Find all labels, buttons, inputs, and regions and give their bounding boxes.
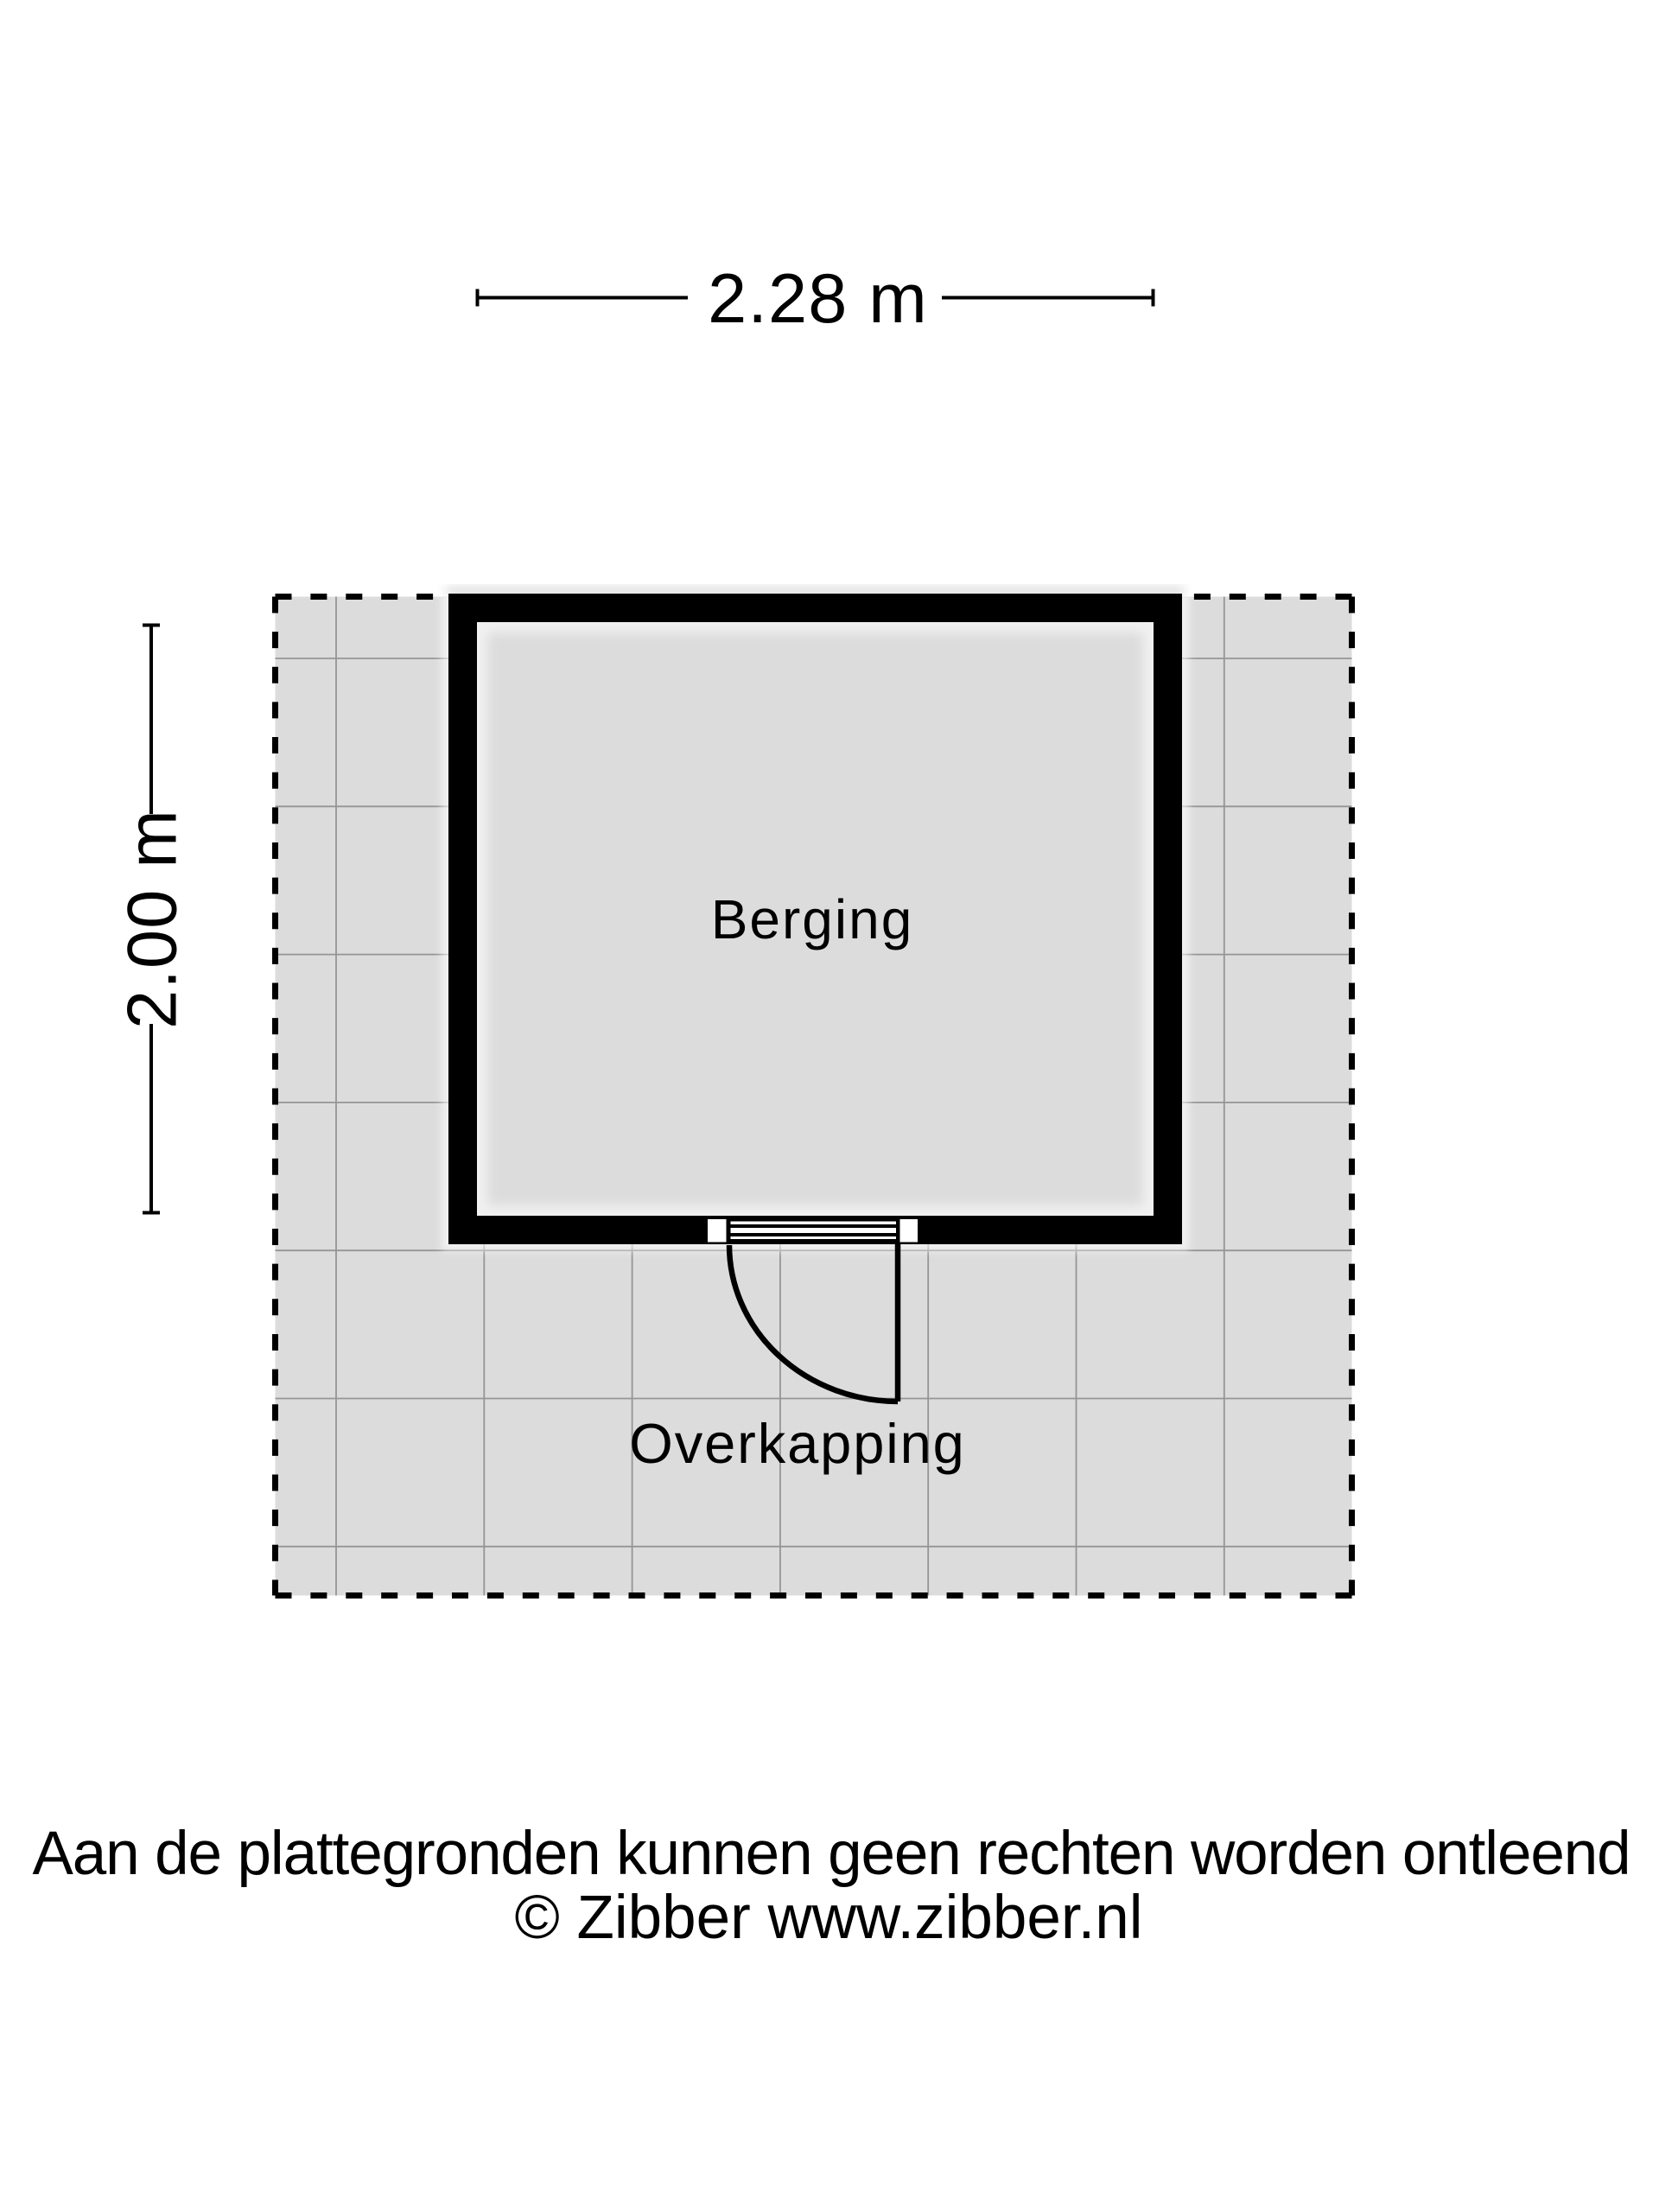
svg-text:2.28 m: 2.28 m	[708, 260, 928, 338]
svg-text:Overkapping: Overkapping	[629, 1412, 965, 1475]
svg-text:2.00 m: 2.00 m	[114, 809, 192, 1029]
svg-text:Aan de plattegronden kunnen ge: Aan de plattegronden kunnen geen rechten…	[32, 1820, 1630, 1888]
svg-text:© Zibber www.zibber.nl: © Zibber www.zibber.nl	[514, 1884, 1142, 1952]
svg-text:Berging: Berging	[711, 888, 914, 950]
